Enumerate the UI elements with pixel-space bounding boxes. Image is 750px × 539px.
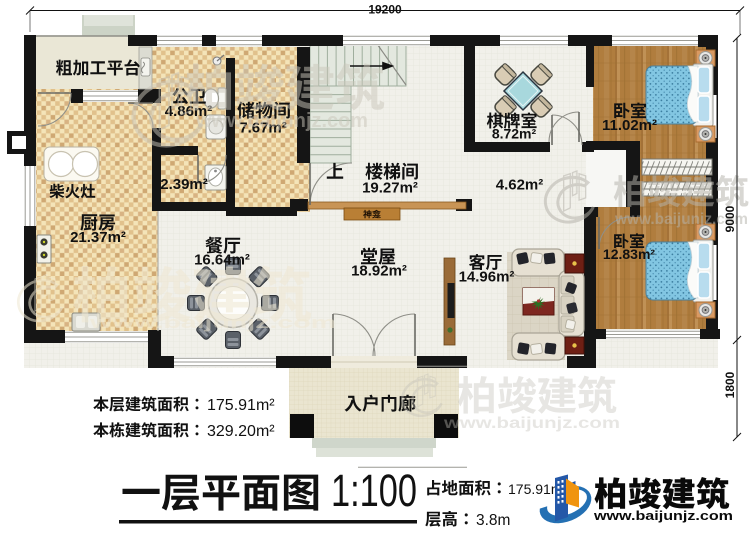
svg-text:www.baijunjz.com: www.baijunjz.com (88, 313, 336, 332)
svg-text:14.96m²: 14.96m² (459, 269, 515, 286)
svg-text:16.64m²: 16.64m² (194, 252, 250, 269)
svg-text:11.02m²: 11.02m² (602, 117, 657, 134)
svg-text:9000: 9000 (723, 205, 737, 232)
svg-text:19200: 19200 (368, 3, 402, 17)
svg-text:18.92m²: 18.92m² (351, 263, 407, 280)
svg-text:175.91m²: 175.91m² (207, 397, 275, 414)
svg-text:8.72m²: 8.72m² (492, 126, 537, 142)
svg-text:19.27m²: 19.27m² (362, 180, 418, 197)
svg-text:www.baijunjz.com: www.baijunjz.com (593, 508, 733, 523)
svg-text:21.37m²: 21.37m² (70, 229, 126, 246)
svg-text:329.20m²: 329.20m² (207, 423, 275, 440)
svg-text:www.baijunjz.com: www.baijunjz.com (443, 415, 620, 432)
svg-text:1800: 1800 (723, 371, 737, 398)
svg-text:1:100: 1:100 (331, 465, 417, 516)
svg-text:2.39m²: 2.39m² (160, 176, 208, 193)
svg-text:www.baijunjz.com: www.baijunjz.com (195, 110, 368, 132)
svg-text:12.83m²: 12.83m² (603, 246, 655, 262)
svg-text:4.62m²: 4.62m² (496, 177, 544, 194)
svg-text:3.8m: 3.8m (476, 512, 510, 529)
